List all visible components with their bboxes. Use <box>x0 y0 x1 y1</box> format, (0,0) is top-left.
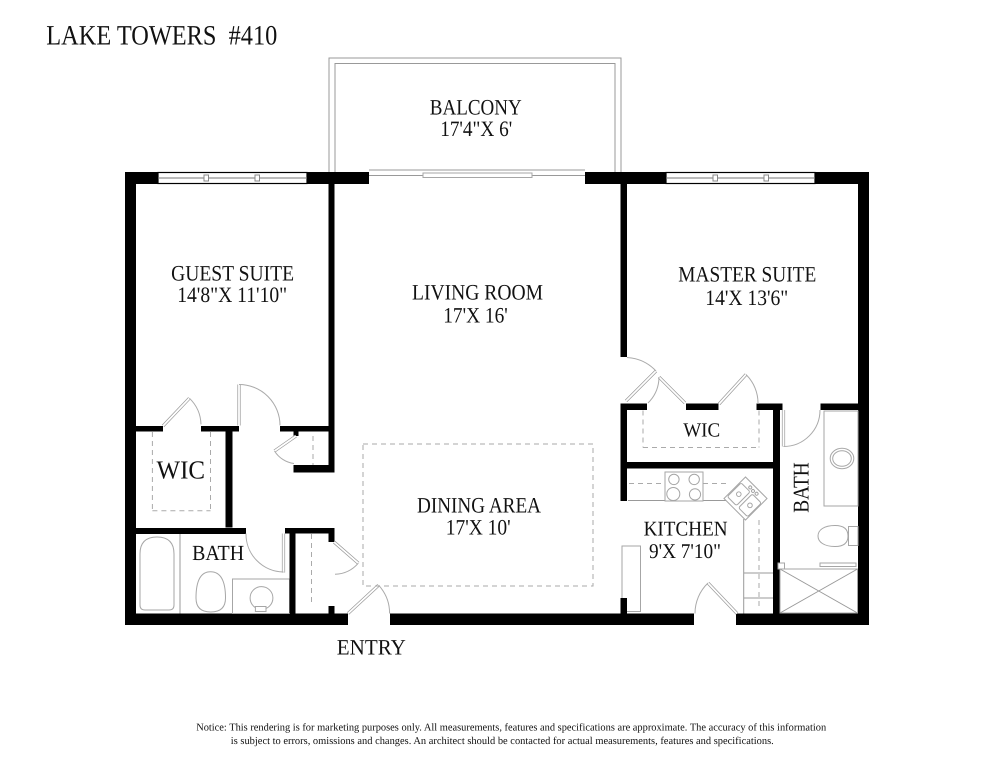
svg-text:17'4"X 6': 17'4"X 6' <box>440 116 512 141</box>
svg-text:ENTRY: ENTRY <box>337 634 406 659</box>
svg-text:is subject to errors, omission: is subject to errors, omissions and chan… <box>231 736 774 747</box>
svg-text:9'X 7'10": 9'X 7'10" <box>649 539 721 563</box>
svg-text:MASTER SUITE: MASTER SUITE <box>678 262 816 287</box>
svg-text:14'8"X 11'10": 14'8"X 11'10" <box>177 282 287 307</box>
svg-text:14'X 13'6": 14'X 13'6" <box>705 285 788 310</box>
svg-text:WIC: WIC <box>157 456 206 485</box>
svg-text:17'X 10': 17'X 10' <box>446 514 511 539</box>
svg-text:Notice: This rendering is for: Notice: This rendering is for marketing … <box>196 723 827 734</box>
svg-text:BATH: BATH <box>789 462 814 513</box>
svg-text:LIVING ROOM: LIVING ROOM <box>412 280 543 305</box>
svg-text:LAKE TOWERS #410: LAKE TOWERS #410 <box>46 20 277 51</box>
svg-text:WIC: WIC <box>683 420 720 442</box>
svg-text:17'X 16': 17'X 16' <box>443 302 508 327</box>
svg-text:BATH: BATH <box>192 541 244 565</box>
svg-text:KITCHEN: KITCHEN <box>644 517 728 541</box>
